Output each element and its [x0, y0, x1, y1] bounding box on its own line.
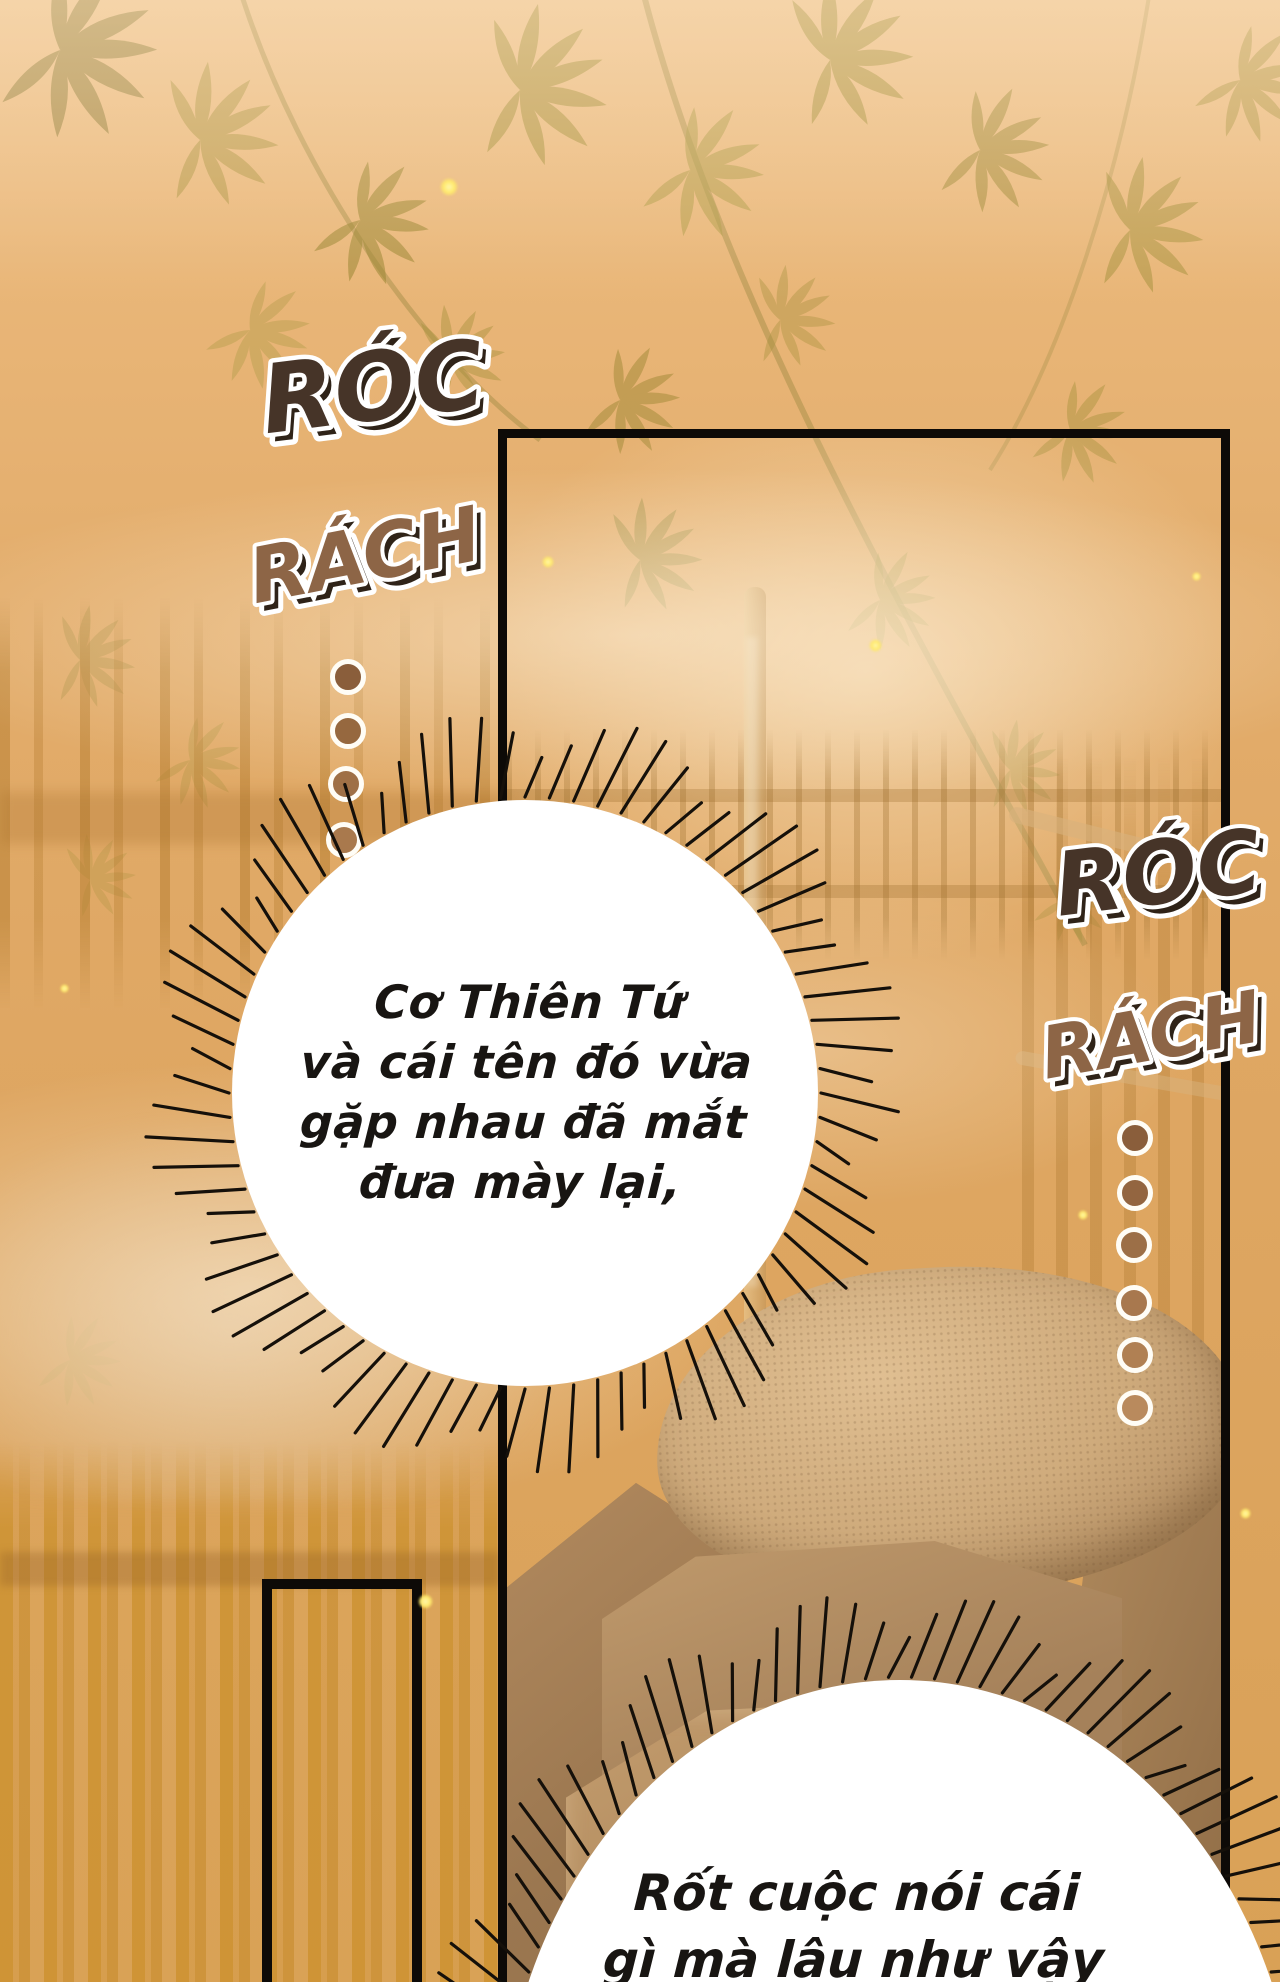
sparkle	[1078, 1210, 1088, 1220]
sparkle	[440, 178, 458, 196]
sparkle	[869, 639, 882, 652]
sparkle	[1192, 572, 1201, 581]
bubble-line: đưa mày lại,	[229, 1152, 812, 1212]
bubble-line: Cơ Thiên Tứ	[238, 972, 821, 1032]
bubble-line: Rốt cuộc nói cái	[565, 1860, 1149, 1927]
sparkle	[542, 556, 554, 568]
comic-page: RÓC RÓC RÁCH RÁCH RÓC RÓC RÁCH RÁCH	[0, 0, 1280, 1982]
bubble-text-top: Cơ Thiên Tứ và cái tên đó vừa gặp nhau đ…	[229, 972, 822, 1212]
sparkle	[1240, 1508, 1251, 1519]
sparkle	[418, 1594, 433, 1609]
bubble-line: và cái tên đó vừa	[235, 1032, 818, 1092]
bubble-line: gì mà lâu như vậy	[561, 1927, 1145, 1982]
bubble-line: gặp nhau đã mắt	[232, 1092, 815, 1152]
bubble-text-bottom: Rốt cuộc nói cái gì mà lâu như vậy	[561, 1860, 1148, 1982]
sparkle	[60, 984, 69, 993]
